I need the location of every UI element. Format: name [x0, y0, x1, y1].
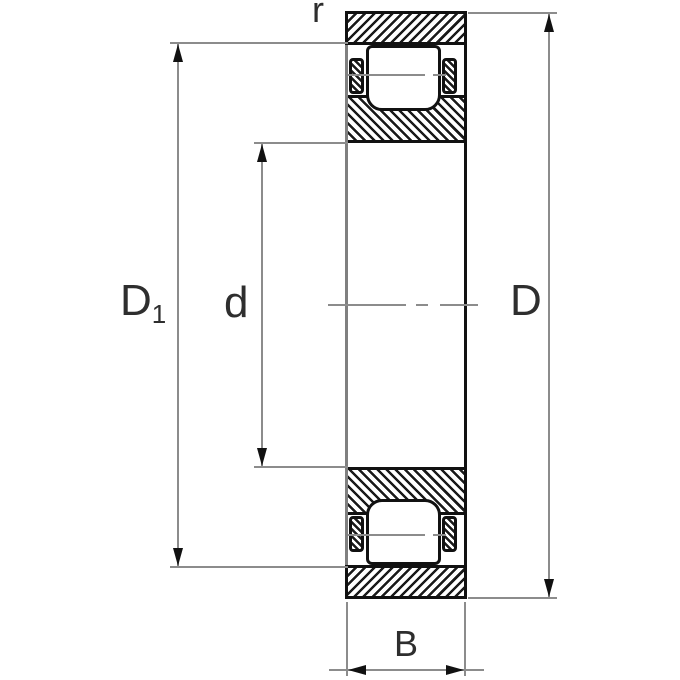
outside-dimension-line	[548, 13, 550, 598]
label-bore-diameter: d	[224, 281, 248, 325]
outer-ring-top-section	[348, 14, 464, 45]
label-width: B	[394, 626, 418, 662]
label-d1: D1	[120, 279, 166, 327]
d1-dimension-line	[177, 43, 179, 567]
d1-extension-line-top	[170, 42, 348, 44]
d1-extension-line-bottom	[170, 566, 348, 568]
label-d1-base: D	[120, 276, 152, 325]
label-outside-text: D	[510, 276, 542, 325]
d-arrow-up-icon	[257, 144, 267, 162]
width-arrow-left-icon	[348, 665, 366, 675]
d1-arrow-down-icon	[173, 548, 183, 566]
d-dimension-line	[261, 143, 263, 467]
roller-top	[366, 45, 441, 111]
label-chamfer-radius: r	[312, 0, 324, 28]
width-arrow-right-icon	[446, 665, 464, 675]
bearing-dimension-drawing: D1 d D B r	[0, 0, 680, 680]
outside-extension-line-bottom	[468, 597, 557, 599]
outside-arrow-up-icon	[544, 14, 554, 32]
label-width-text: B	[394, 623, 418, 664]
label-outside-diameter: D	[510, 279, 542, 323]
label-chamfer-text: r	[312, 0, 324, 30]
bearing-axis-centerline	[328, 304, 478, 306]
outside-arrow-down-icon	[544, 579, 554, 597]
roller-top-axis-line	[348, 74, 452, 76]
label-bore-text: d	[224, 278, 248, 327]
roller-bottom-axis-line	[348, 534, 452, 536]
d-extension-line-bottom	[254, 466, 348, 468]
roller-bottom	[366, 499, 441, 565]
outer-ring-bottom-section	[348, 565, 464, 596]
d-arrow-down-icon	[257, 448, 267, 466]
d1-arrow-up-icon	[173, 44, 183, 62]
width-extension-line-right	[464, 602, 466, 676]
d-extension-line-top	[254, 142, 348, 144]
cage-bar-top-right	[442, 58, 457, 94]
label-d1-subscript: 1	[152, 299, 166, 329]
cage-bar-top-left	[349, 58, 364, 94]
